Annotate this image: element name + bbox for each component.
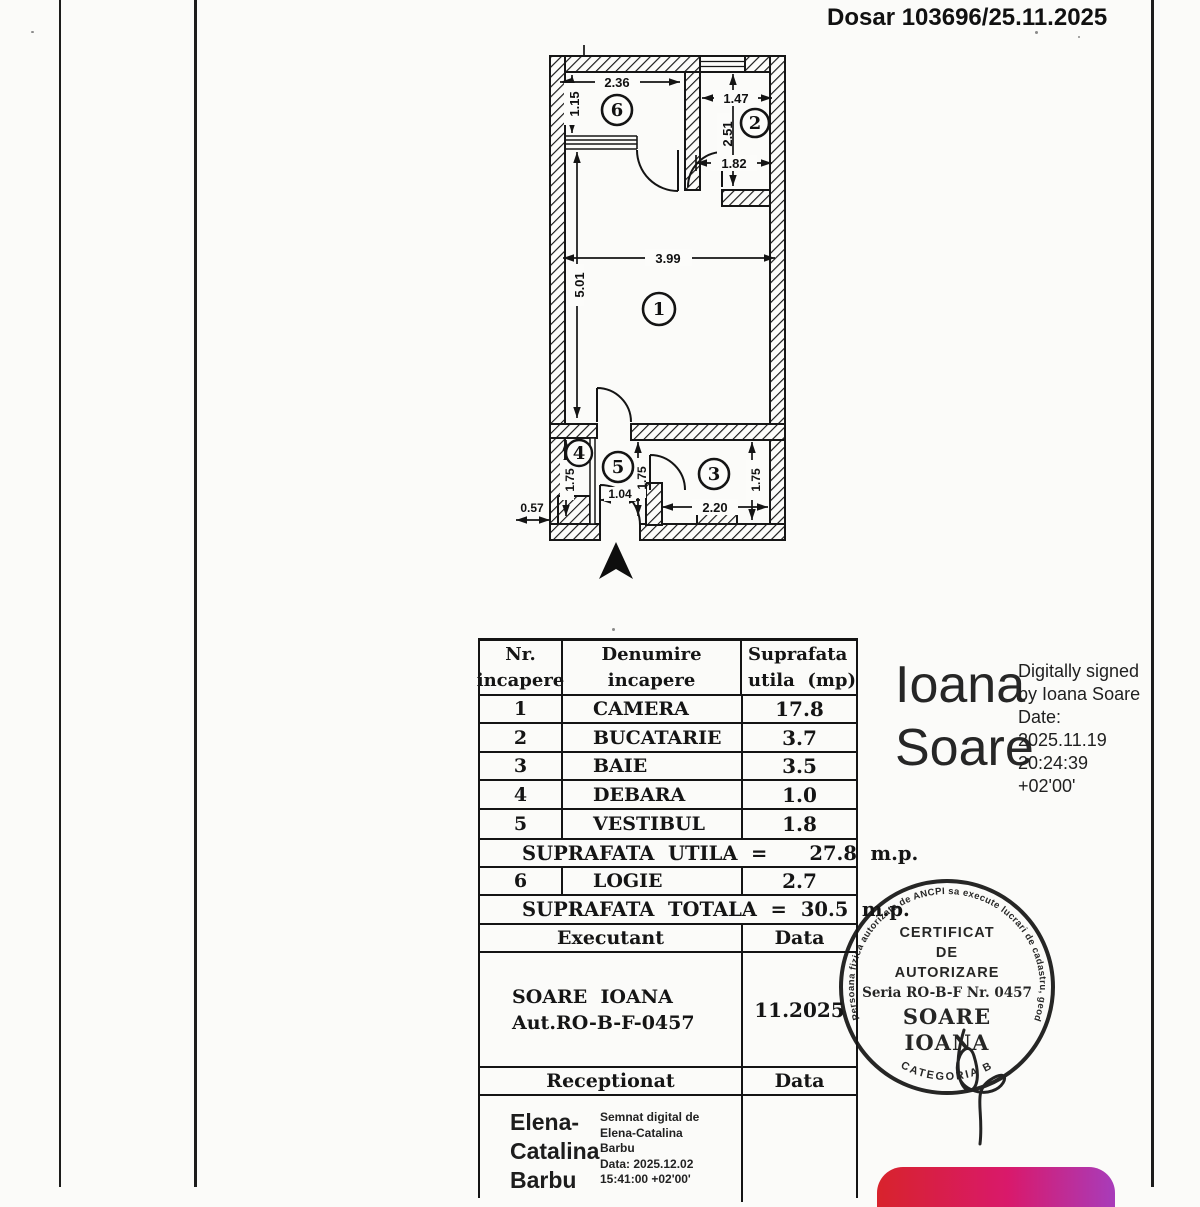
suprafata-utila-row: SUPRAFATA UTILA = 27.8 m.p. [480, 840, 856, 868]
table-row: 1 CAMERA 17.8 [480, 696, 856, 724]
row-name: BUCATARIE [563, 724, 743, 751]
header-suprafata: Suprafata utila (mp) [742, 641, 856, 694]
row-area: 1.0 [743, 781, 856, 808]
dim-niche-width: 0.57 [520, 501, 544, 515]
balcony-door [637, 150, 678, 191]
scanned-document-page: Dosar 103696/25.11.2025 [0, 0, 1200, 1187]
wall-segment [640, 524, 785, 540]
dosar-reference: Dosar 103696/25.11.2025 [827, 4, 1107, 32]
stamp-line: CERTIFICAT [899, 925, 994, 941]
wall-segment [770, 56, 785, 540]
signature-line: Semnat digital de [600, 1110, 699, 1126]
signer-name-line: Catalina [510, 1137, 599, 1166]
row-nr: 5 [480, 810, 563, 838]
row-nr: 1 [480, 696, 563, 722]
row-name: CAMERA [563, 696, 743, 722]
north-arrow-icon [599, 542, 633, 579]
header-text: incapere [477, 668, 565, 694]
room-number-vestibul: 5 [612, 457, 625, 478]
header-text: utila (mp) [748, 668, 856, 694]
digital-signature-name-2: Soare [895, 718, 1034, 778]
wall-segment [722, 190, 770, 206]
signature-line: Data: 2025.12.02 [600, 1157, 699, 1173]
page-rule-left-1 [59, 0, 61, 1187]
dim-bucatarie-width: 1.47 [723, 91, 748, 106]
dim-camera-width: 3.99 [655, 251, 680, 266]
table-header-row: Nr. incapere Denumire incapere Suprafata… [480, 641, 856, 696]
row-name: DEBARA [563, 781, 743, 808]
stamp-line: DE [936, 945, 958, 961]
suprafata-totala-label: SUPRAFATA TOTALA = [522, 898, 787, 921]
digital-signature-details: Digitally signed by Ioana Soare Date: 20… [1018, 660, 1148, 798]
receptionat-label: Receptionat [480, 1068, 743, 1094]
room-number-bucatarie: 2 [749, 113, 762, 134]
signature-detail-line: by Ioana Soare [1018, 683, 1148, 706]
signature-detail-line: Date: [1018, 706, 1148, 729]
executant-row: SOARE IOANA Aut.RO-B-F-0457 11.2025 [480, 953, 856, 1068]
wall-segment [550, 424, 597, 438]
dim-logie-depth: 1.15 [567, 91, 582, 116]
dim-bucatarie-depth: 2.51 [720, 121, 735, 146]
wall-segment [697, 514, 737, 524]
header-nr: Nr. incapere [480, 641, 563, 694]
scan-speck [612, 628, 615, 631]
suprafata-totala-row: SUPRAFATA TOTALA = 30.5 m.p. [480, 896, 856, 925]
row-nr: 2 [480, 724, 563, 751]
row-name: BAIE [563, 753, 743, 779]
logie-sill [565, 136, 637, 149]
stamp-line: IOANA [905, 1030, 990, 1055]
signature-detail-line: Digitally signed [1018, 660, 1148, 683]
dim-baie-depth: 1.75 [749, 468, 763, 492]
dim-vestibul-width: 1.04 [608, 487, 632, 501]
receptionat-header-row: Receptionat Data [480, 1068, 856, 1096]
header-denumire: Denumire incapere [563, 641, 742, 694]
wall-segment [631, 424, 785, 440]
header-text: Suprafata [748, 642, 847, 668]
wall-segment [685, 72, 700, 190]
floor-plan: 2.36 1.47 1.82 3.99 2.20 1.04 0.57 1.15 … [500, 28, 810, 588]
row-nr: 4 [480, 781, 563, 808]
gradient-logo [877, 1167, 1115, 1207]
dim-bucatarie-inner: 1.82 [721, 156, 746, 171]
signature-detail-line: +02'00' [1018, 775, 1148, 798]
receptionat-signer-name: Elena- Catalina Barbu [510, 1108, 599, 1195]
dim-camera-depth: 5.01 [572, 272, 587, 297]
signer-name-line: Elena- [510, 1108, 599, 1137]
stamp-line: AUTORIZARE [895, 965, 1000, 981]
room-number-camera: 1 [653, 299, 666, 320]
row-area: 3.5 [743, 753, 856, 779]
stamp-line: Seria RO-B-F Nr. 0457 [862, 985, 1032, 1001]
row-name: LOGIE [563, 868, 743, 894]
row-area: 17.8 [743, 696, 856, 722]
wall-segment [558, 496, 590, 524]
room-number-logie: 6 [611, 100, 624, 121]
row-area: 3.7 [743, 724, 856, 751]
room-number-baie: 3 [708, 464, 721, 485]
stamp-line: SOARE [903, 1004, 991, 1029]
scan-speck [31, 31, 34, 33]
window [700, 56, 745, 72]
table-row: 2 BUCATARIE 3.7 [480, 724, 856, 753]
scan-speck [1078, 36, 1080, 38]
executant-name: SOARE IOANA [512, 984, 741, 1010]
digital-signature-name-1: Ioana [895, 655, 1025, 715]
header-text: Nr. [505, 642, 536, 668]
scan-speck [1035, 31, 1038, 34]
signature-detail-line: 20:24:39 [1018, 752, 1148, 775]
authorization-stamp: Persoana fizica autorizata de ANCPI sa e… [812, 852, 1082, 1152]
receptionat-digital-signature: Semnat digital de Elena-Catalina Barbu D… [600, 1110, 699, 1188]
table-row: 5 VESTIBUL 1.8 [480, 810, 856, 840]
header-text: Denumire [563, 642, 740, 668]
logie-row: 6 LOGIE 2.7 [480, 868, 856, 896]
signature-line: 15:41:00 +02'00' [600, 1172, 699, 1188]
camera-door [597, 388, 631, 422]
wall-segment [550, 56, 700, 72]
page-rule-right [1151, 0, 1154, 1187]
signature-line: Barbu [600, 1141, 699, 1157]
wall-segment [550, 524, 600, 540]
executant-authorization: Aut.RO-B-F-0457 [512, 1010, 741, 1036]
dim-debara-depth: 1.75 [563, 468, 577, 492]
executant-header-row: Executant Data [480, 925, 856, 953]
stamp-category-text: CATEGORIA B [899, 1059, 995, 1083]
room-number-debara: 4 [573, 443, 586, 464]
suprafata-utila-label: SUPRAFATA UTILA = [522, 842, 767, 865]
row-nr: 6 [480, 868, 563, 894]
table-row: 4 DEBARA 1.0 [480, 781, 856, 810]
executant-label: Executant [480, 925, 743, 951]
executant-cell: SOARE IOANA Aut.RO-B-F-0457 [480, 953, 743, 1066]
signature-line: Elena-Catalina [600, 1126, 699, 1142]
dim-logie-width: 2.36 [604, 75, 629, 90]
header-text: incapere [563, 668, 740, 694]
dim-vestibul-depth: 1.75 [635, 466, 649, 490]
row-name: VESTIBUL [563, 810, 743, 838]
signature-detail-line: 2025.11.19 [1018, 729, 1148, 752]
row-nr: 3 [480, 753, 563, 779]
table-row: 3 BAIE 3.5 [480, 753, 856, 781]
row-area: 1.8 [743, 810, 856, 838]
page-rule-left-2 [194, 0, 197, 1187]
dim-baie-width: 2.20 [702, 500, 727, 515]
signer-name-line: Barbu [510, 1166, 599, 1195]
